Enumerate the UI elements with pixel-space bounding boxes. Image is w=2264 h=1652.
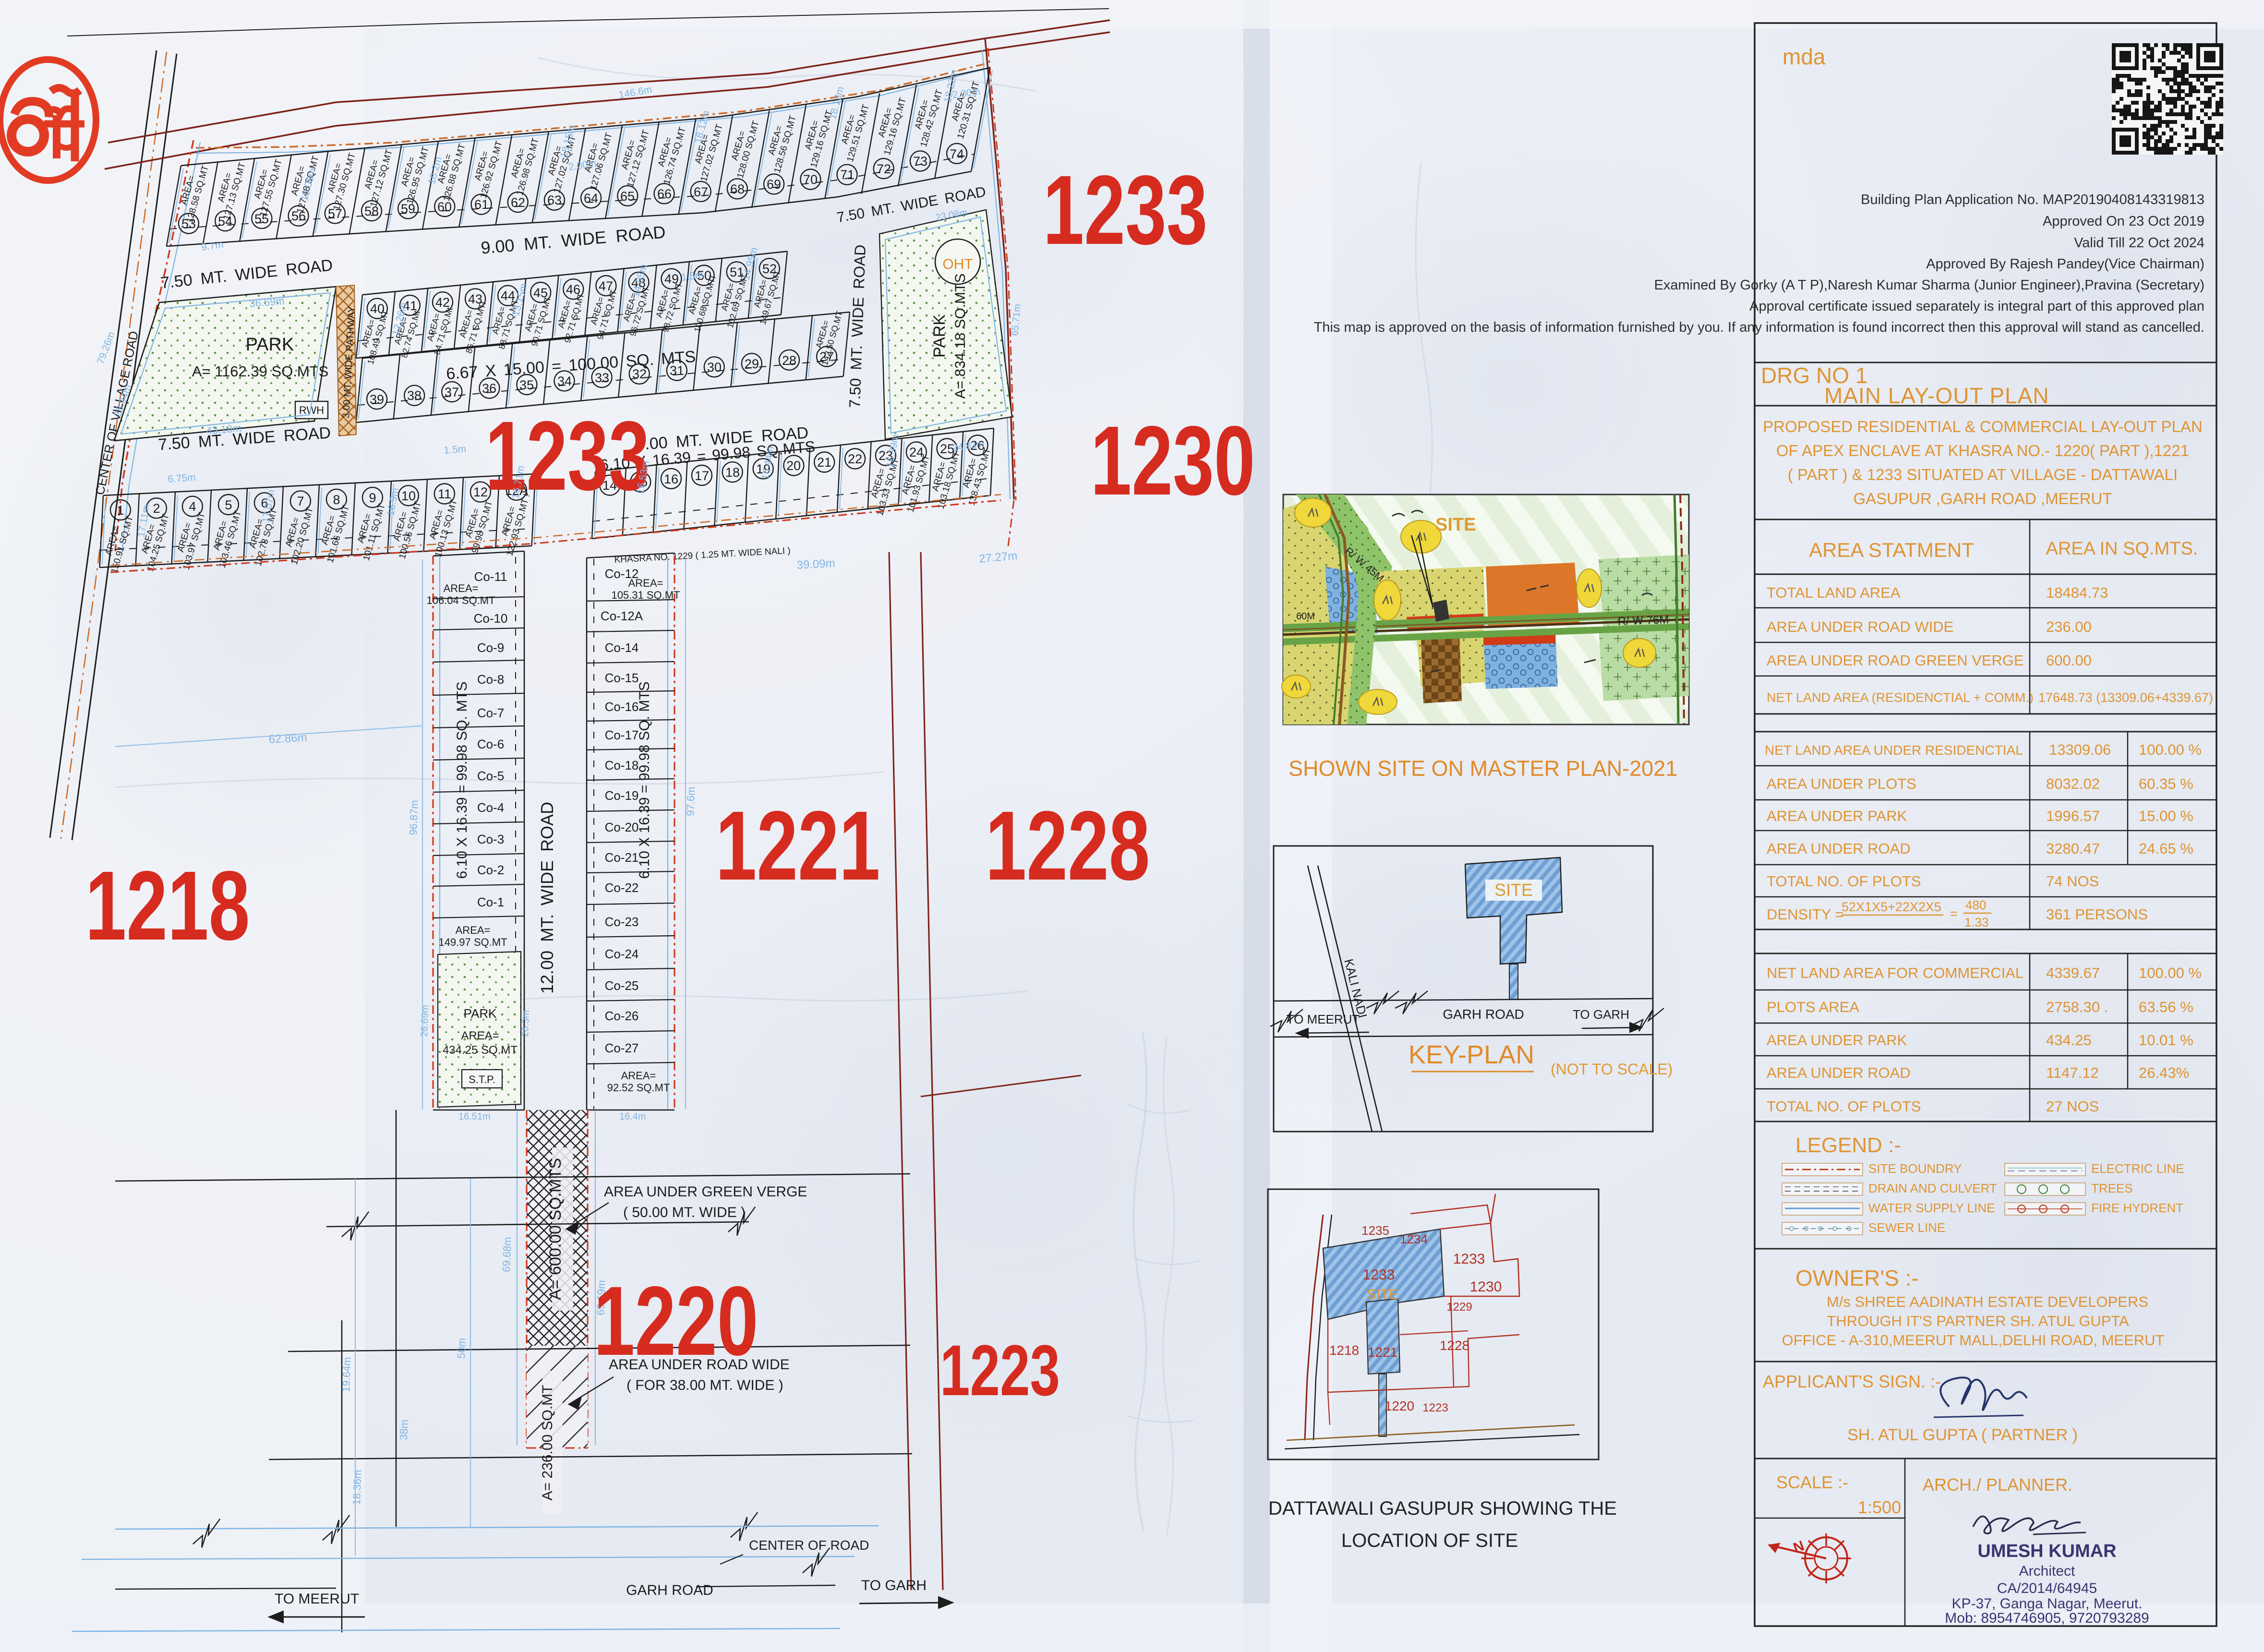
svg-text:AREA UNDER ROAD: AREA UNDER ROAD [1767, 840, 1911, 857]
svg-text:AREA UNDER PLOTS: AREA UNDER PLOTS [1767, 775, 1916, 792]
svg-text:Co-1: Co-1 [477, 895, 504, 909]
svg-text:70: 70 [803, 172, 818, 187]
svg-text:Approval certificate issued se: Approval certificate issued separately i… [1749, 299, 2204, 314]
svg-text:38m: 38m [397, 1420, 410, 1441]
svg-text:66: 66 [657, 187, 672, 201]
svg-text:7: 7 [297, 494, 304, 508]
svg-text:SITE: SITE [1435, 515, 1476, 535]
svg-text:Mob: 8954746905, 9720793289: Mob: 8954746905, 9720793289 [1945, 1610, 2149, 1626]
svg-text:19.64m: 19.64m [340, 1357, 353, 1392]
svg-text:22: 22 [848, 452, 862, 466]
svg-text:480: 480 [1965, 898, 1986, 912]
svg-text:74: 74 [950, 147, 964, 161]
svg-text:8032.02: 8032.02 [2046, 775, 2100, 792]
svg-text:13309.06: 13309.06 [2049, 741, 2111, 758]
svg-text:1228: 1228 [986, 791, 1150, 901]
svg-text:39.09m: 39.09m [796, 557, 835, 572]
svg-text:1228: 1228 [1440, 1338, 1469, 1353]
svg-text:UMESH KUMAR: UMESH KUMAR [1977, 1541, 2116, 1561]
svg-text:60M: 60M [1296, 611, 1315, 622]
svg-text:APPLICANT'S SIGN. :-: APPLICANT'S SIGN. :- [1763, 1372, 1941, 1391]
svg-text:AREA=: AREA= [444, 582, 479, 594]
svg-text:SH. ATUL GUPTA ( PARTNER ): SH. ATUL GUPTA ( PARTNER ) [1847, 1426, 2078, 1444]
svg-text:OF APEX ENCLAVE AT KHASRA: OF APEX ENCLAVE AT KHASRA NO.- 1220( PAR… [1776, 442, 2189, 459]
svg-text:1.5m: 1.5m [444, 444, 467, 456]
svg-text:1218: 1218 [85, 851, 250, 961]
svg-text:62.86m: 62.86m [268, 731, 307, 746]
svg-text:6.10 X 16.39 = 99.98 SQ. MTS: 6.10 X 16.39 = 99.98 SQ. MTS [637, 681, 652, 879]
svg-text:8: 8 [333, 493, 340, 507]
svg-text:106.04 SQ.MT: 106.04 SQ.MT [426, 594, 495, 606]
svg-text:36: 36 [482, 381, 496, 396]
svg-text:AREA=: AREA= [461, 1029, 499, 1042]
svg-text:1: 1 [117, 503, 124, 518]
svg-text:1220: 1220 [594, 1266, 759, 1376]
svg-text:434.25: 434.25 [2046, 1032, 2092, 1049]
svg-text:DATTAWALI GASUPUR SHOWING THE: DATTAWALI GASUPUR SHOWING THE [1268, 1498, 1617, 1519]
svg-text:Co-8: Co-8 [477, 672, 504, 687]
svg-text:26.69m: 26.69m [419, 1005, 431, 1037]
svg-text:26.43%: 26.43% [2139, 1064, 2189, 1081]
svg-text:Co-26: Co-26 [605, 1009, 639, 1023]
svg-text:10.01 %: 10.01 % [2139, 1032, 2193, 1049]
svg-text:TOTAL NO. OF PLOTS: TOTAL NO. OF PLOTS [1767, 873, 1921, 890]
svg-text:Approved By Rajesh Pandey(Vice: Approved By Rajesh Pandey(Vice Chairman) [1926, 256, 2204, 272]
svg-text:18: 18 [725, 465, 740, 480]
svg-text:NET LAND AREA FOR COMMERCIAL: NET LAND AREA FOR COMMERCIAL [1767, 965, 2023, 981]
svg-text:1996.57: 1996.57 [2046, 808, 2100, 824]
svg-text:M/s SHREE AADINATH ESTATE: M/s SHREE AADINATH ESTATE DEVELOPERS [1827, 1293, 2148, 1310]
svg-text:2758.30 .: 2758.30 . [2046, 999, 2108, 1015]
svg-text:1221: 1221 [1368, 1345, 1397, 1360]
svg-text:PARK: PARK [464, 1006, 497, 1021]
svg-text:65: 65 [620, 189, 635, 204]
svg-text:50m: 50m [455, 1338, 468, 1359]
svg-text:1235: 1235 [1361, 1223, 1389, 1238]
svg-text:28: 28 [782, 353, 796, 368]
svg-text:1233: 1233 [1043, 155, 1208, 265]
svg-text:60.35 %: 60.35 % [2139, 775, 2193, 792]
svg-text:Approved On 23 Oct 2019: Approved On 23 Oct 2019 [2043, 214, 2204, 229]
svg-text:92.52 SQ.MT: 92.52 SQ.MT [607, 1082, 670, 1094]
svg-text:SITE: SITE [1494, 880, 1533, 900]
svg-text:DRAIN AND CULVERT: DRAIN AND CULVERT [1868, 1181, 1997, 1195]
svg-text:TO GARH: TO GARH [861, 1578, 927, 1593]
svg-text:21: 21 [817, 455, 831, 470]
svg-text:SCALE :-: SCALE :- [1776, 1472, 1848, 1492]
svg-text:3280.47: 3280.47 [2046, 840, 2100, 857]
svg-text:=: = [1950, 906, 1958, 921]
svg-text:4: 4 [189, 499, 196, 514]
svg-text:9: 9 [369, 491, 376, 505]
svg-text:52X1X5+22X2X5: 52X1X5+22X2X5 [1842, 900, 1941, 914]
svg-text:71: 71 [840, 168, 855, 182]
svg-text:AREA UNDER PARK: AREA UNDER PARK [1767, 1032, 1907, 1049]
svg-text:A= 600.00 SQ.MTS: A= 600.00 SQ.MTS [546, 1158, 565, 1300]
svg-text:MAIN LAY-OUT PLAN: MAIN LAY-OUT PLAN [1824, 383, 2049, 408]
svg-text:PARK: PARK [246, 335, 294, 355]
svg-text:Co-22: Co-22 [605, 880, 639, 895]
svg-text:33: 33 [595, 371, 609, 385]
svg-text:Co-27: Co-27 [605, 1041, 639, 1055]
svg-text:1233: 1233 [485, 401, 650, 511]
svg-text:WATER SUPPLY LINE: WATER SUPPLY LINE [1868, 1201, 1995, 1215]
svg-text:1230: 1230 [1470, 1279, 1502, 1295]
svg-text:AREA=: AREA= [621, 1070, 656, 1082]
svg-text:THROUGH IT'S PARTNER SH.: THROUGH IT'S PARTNER SH. ATUL GUPTA [1827, 1313, 2129, 1329]
svg-text:67: 67 [694, 185, 708, 199]
svg-text:( FOR 38.00 MT. WIDE ): ( FOR 38.00 MT. WIDE ) [626, 1377, 783, 1393]
svg-text:A= 1162.39 SQ.MTS: A= 1162.39 SQ.MTS [192, 363, 329, 380]
svg-text:1233: 1233 [1453, 1251, 1485, 1267]
svg-text:18.36m: 18.36m [350, 1470, 364, 1505]
svg-text:KP-37, Ganga Nagar, Meerut.: KP-37, Ganga Nagar, Meerut. [1952, 1596, 2143, 1612]
svg-text:OHT: OHT [942, 256, 973, 272]
svg-text:OFFICE - A-310,MEERUT MALL,D: OFFICE - A-310,MEERUT MALL,DELHI ROAD, M… [1782, 1332, 2165, 1349]
svg-text:Co-14: Co-14 [605, 640, 639, 655]
svg-text:KEY-PLAN: KEY-PLAN [1409, 1040, 1534, 1069]
svg-text:17: 17 [695, 469, 709, 483]
svg-text:1147.12: 1147.12 [2046, 1064, 2099, 1081]
svg-text:LEGEND :-: LEGEND :- [1795, 1133, 1901, 1157]
svg-text:1233: 1233 [1363, 1267, 1395, 1283]
svg-text:DENSITY =: DENSITY = [1767, 906, 1844, 923]
svg-text:(NOT TO SCALE): (NOT TO SCALE) [1551, 1061, 1673, 1078]
svg-text:ARCH./ PLANNER.: ARCH./ PLANNER. [1923, 1475, 2072, 1495]
svg-text:37: 37 [445, 385, 459, 399]
svg-text:17648.73 (13309.06+4339.67): 17648.73 (13309.06+4339.67) [2038, 690, 2213, 705]
svg-text:1:500: 1:500 [1858, 1497, 1901, 1517]
svg-text:Co-20: Co-20 [605, 820, 639, 834]
svg-text:GASUPUR ,GARH ROAD ,MEERUT: GASUPUR ,GARH ROAD ,MEERUT [1853, 490, 2112, 507]
svg-text:63.56 %: 63.56 % [2139, 999, 2193, 1015]
svg-text:A= 236.00 SQ.MT: A= 236.00 SQ.MT [540, 1385, 555, 1501]
svg-text:AREA UNDER ROAD: AREA UNDER ROAD [1767, 1064, 1911, 1081]
svg-text:434.25 SQ.MT: 434.25 SQ.MT [443, 1044, 518, 1057]
svg-text:18484.73: 18484.73 [2046, 584, 2108, 601]
svg-text:1230: 1230 [1091, 406, 1255, 516]
svg-text:105.31 SQ.MT: 105.31 SQ.MT [611, 589, 680, 601]
svg-text:OWNER'S :-: OWNER'S :- [1795, 1266, 1919, 1290]
svg-text:236.00: 236.00 [2046, 618, 2092, 635]
svg-text:6.10 X 16.39 = 99.98 SQ. MTS: 6.10 X 16.39 = 99.98 SQ. MTS [454, 681, 470, 879]
svg-text:Co-12A: Co-12A [601, 609, 643, 623]
svg-text:Co-11: Co-11 [474, 569, 507, 584]
svg-text:Co-17: Co-17 [605, 728, 639, 742]
svg-text:AREA=: AREA= [628, 577, 663, 589]
svg-text:100.00 %: 100.00 % [2139, 965, 2202, 981]
svg-text:96.87m: 96.87m [407, 800, 421, 835]
svg-text:AREA UNDER ROAD WIDE: AREA UNDER ROAD WIDE [1767, 618, 1953, 635]
svg-text:361 PERSONS: 361 PERSONS [2046, 906, 2148, 923]
svg-text:Co-6: Co-6 [477, 737, 504, 751]
svg-text:PLOTS AREA: PLOTS AREA [1767, 999, 1859, 1015]
svg-text:1.33: 1.33 [1964, 915, 1989, 929]
svg-text:69: 69 [767, 177, 781, 192]
svg-text:Co-15: Co-15 [605, 671, 639, 685]
svg-text:1218: 1218 [1329, 1343, 1359, 1358]
svg-text:TOTAL NO. OF PLOTS: TOTAL NO. OF PLOTS [1767, 1098, 1921, 1115]
svg-text:Co-18: Co-18 [605, 758, 639, 772]
svg-text:Co-4: Co-4 [477, 800, 504, 815]
svg-text:100.00 %: 100.00 % [2139, 741, 2202, 758]
svg-text:5: 5 [225, 498, 232, 512]
svg-text:AREA=: AREA= [456, 924, 491, 936]
svg-text:16.51m: 16.51m [458, 1111, 491, 1122]
svg-text:AREA UNDER GREEN VERGE: AREA UNDER GREEN VERGE [604, 1184, 807, 1200]
svg-text:ELECTRIC LINE: ELECTRIC LINE [2091, 1161, 2184, 1176]
svg-text:74 NOS: 74 NOS [2046, 873, 2099, 890]
svg-text:30: 30 [707, 360, 722, 374]
svg-text:35: 35 [519, 378, 534, 392]
svg-text:39: 39 [370, 392, 384, 407]
svg-text:1223: 1223 [1422, 1401, 1448, 1414]
svg-text:S.T.P.: S.T.P. [469, 1073, 495, 1085]
svg-text:1223: 1223 [940, 1330, 1060, 1411]
svg-text:24.65 %: 24.65 % [2139, 840, 2193, 857]
svg-text:TREES: TREES [2091, 1181, 2133, 1195]
svg-text:This map is approved on the ba: This map is approved on the basis of inf… [1314, 320, 2204, 335]
svg-text:73: 73 [913, 154, 927, 169]
svg-text:SITE: SITE [1367, 1287, 1399, 1302]
svg-text:TO MEERUT: TO MEERUT [275, 1591, 359, 1607]
svg-text:6.75m: 6.75m [168, 472, 196, 485]
svg-text:CA/2014/64945: CA/2014/64945 [1997, 1580, 2097, 1596]
svg-text:Co-24: Co-24 [605, 947, 639, 961]
svg-text:600.00: 600.00 [2046, 652, 2092, 669]
svg-text:( 50.00 MT. WIDE ): ( 50.00 MT. WIDE ) [623, 1205, 746, 1220]
svg-text:NET LAND AREA (RESIDENCTIAL: NET LAND AREA (RESIDENCTIAL + COMM.) [1767, 690, 2034, 705]
svg-text:TOTAL LAND AREA: TOTAL LAND AREA [1767, 584, 1901, 601]
svg-text:1229: 1229 [1446, 1301, 1472, 1314]
svg-text:Co-10: Co-10 [474, 611, 508, 626]
svg-text:149.97 SQ.MT: 149.97 SQ.MT [438, 936, 507, 948]
svg-text:16.4m: 16.4m [619, 1111, 646, 1122]
svg-text:( PART ) & 1233 SITUATED AT: ( PART ) & 1233 SITUATED AT VILLAGE - DA… [1788, 466, 2178, 483]
svg-text:Valid Till 22 Oct 2024: Valid Till 22 Oct 2024 [2074, 235, 2204, 251]
svg-text:PARK: PARK [930, 314, 949, 358]
svg-text:AREA IN SQ.MTS.: AREA IN SQ.MTS. [2046, 539, 2198, 559]
svg-text:TO GARH: TO GARH [1573, 1007, 1629, 1022]
svg-text:SEWER LINE: SEWER LINE [1868, 1220, 1945, 1235]
svg-text:34: 34 [557, 374, 572, 388]
svg-text:29: 29 [745, 357, 759, 371]
svg-text:A= 834.18 SQ.MTS: A= 834.18 SQ.MTS [952, 274, 968, 399]
svg-text:NET LAND AREA UNDER RESIDENCT: NET LAND AREA UNDER RESIDENCTIAL [1765, 743, 2023, 758]
svg-text:AREA STATMENT: AREA STATMENT [1809, 539, 1974, 561]
svg-text:Building Plan Application No.: Building Plan Application No. MAP2019040… [1861, 192, 2204, 207]
svg-text:Co-5: Co-5 [477, 769, 504, 783]
svg-text:2: 2 [153, 501, 160, 516]
svg-text:SHOWN SITE ON MASTER PLAN-2021: SHOWN SITE ON MASTER PLAN-2021 [1289, 756, 1677, 781]
svg-text:Co-25: Co-25 [605, 978, 639, 993]
svg-text:FIRE HYDRENT: FIRE HYDRENT [2091, 1201, 2183, 1215]
svg-text:20: 20 [786, 458, 801, 473]
svg-text:R/ W 76M: R/ W 76M [1617, 613, 1669, 628]
svg-text:Co-2: Co-2 [477, 863, 504, 877]
svg-text:SITE BOUNDRY: SITE BOUNDRY [1868, 1161, 1962, 1176]
svg-text:LOCATION OF SITE: LOCATION OF SITE [1341, 1530, 1518, 1551]
svg-text:Co-19: Co-19 [605, 788, 639, 803]
svg-text:27 NOS: 27 NOS [2046, 1098, 2099, 1115]
svg-text:15.00 %: 15.00 % [2139, 808, 2193, 824]
svg-text:CENTER OF ROAD: CENTER OF ROAD [749, 1538, 869, 1553]
svg-text:62: 62 [511, 195, 525, 210]
svg-text:26.3m: 26.3m [520, 1010, 531, 1037]
svg-text:1220: 1220 [1385, 1399, 1414, 1413]
svg-text:68: 68 [730, 182, 745, 196]
svg-text:Co-16: Co-16 [605, 699, 639, 714]
svg-text:Examined By Gorky (A T P),Nare: Examined By Gorky (A T P),Naresh Kumar S… [1654, 277, 2204, 293]
svg-text:Co-3: Co-3 [477, 832, 504, 846]
svg-text:Co-21: Co-21 [605, 850, 639, 865]
svg-text:12.00 MT. WIDE ROAD: 12.00 MT. WIDE ROAD [537, 802, 557, 994]
svg-text:4339.67: 4339.67 [2046, 965, 2100, 981]
svg-text:mda: mda [1782, 44, 1826, 69]
svg-text:16: 16 [664, 472, 678, 486]
svg-text:63: 63 [547, 193, 562, 207]
svg-text:72: 72 [877, 162, 891, 176]
svg-text:Co-9: Co-9 [477, 640, 504, 655]
svg-text:64: 64 [584, 191, 598, 205]
svg-text:GARH ROAD: GARH ROAD [1443, 1007, 1524, 1022]
svg-text:AREA UNDER PARK: AREA UNDER PARK [1767, 808, 1907, 824]
svg-text:PROPOSED RESIDENTIAL & COMMER: PROPOSED RESIDENTIAL & COMMERCIAL LAY-OU… [1763, 418, 2203, 435]
svg-text:1234: 1234 [1400, 1232, 1428, 1246]
svg-text:1221: 1221 [716, 791, 880, 901]
svg-text:GARH ROAD: GARH ROAD [626, 1582, 713, 1598]
svg-text:Architect: Architect [2019, 1563, 2075, 1579]
svg-text:69.68m: 69.68m [500, 1237, 514, 1272]
svg-text:Co-23: Co-23 [605, 915, 639, 929]
svg-text:97.6m: 97.6m [684, 786, 697, 816]
svg-text:38: 38 [407, 388, 421, 403]
svg-text:Co-7: Co-7 [477, 706, 504, 720]
svg-text:AREA UNDER ROAD GREEN VERGE: AREA UNDER ROAD GREEN VERGE [1767, 652, 2024, 669]
